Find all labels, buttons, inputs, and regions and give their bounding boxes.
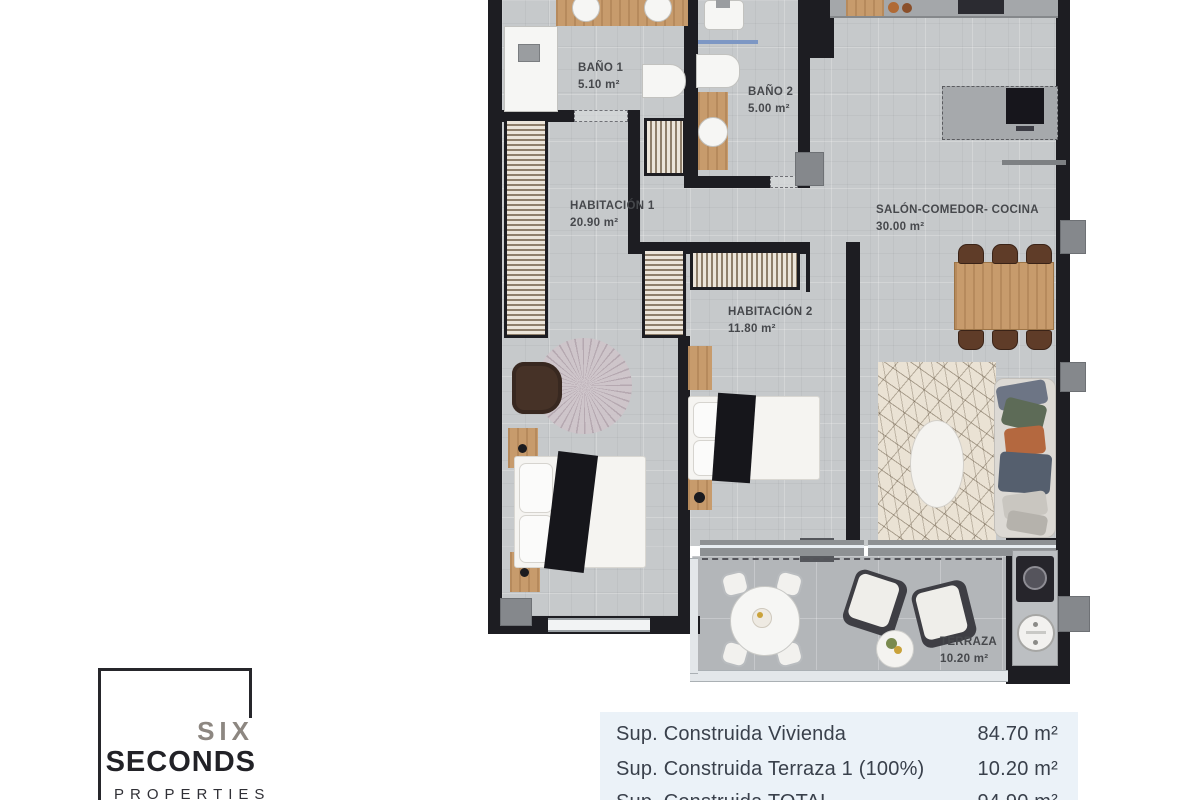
page-canvas: BAÑO 1 5.10 m² BAÑO 2 5.00 m² HABITACIÓN…	[0, 0, 1200, 800]
bath2-faucet	[716, 0, 730, 8]
dining-table	[954, 262, 1054, 330]
summary-row: Sup. Construida TOTAL 94.90 m²	[600, 791, 1078, 800]
room-label-terraza: TERRAZA 10.20 m²	[940, 634, 997, 667]
pillar	[795, 152, 824, 186]
room-label-banyo1: BAÑO 1 5.10 m²	[578, 60, 623, 93]
wall-left-outer	[488, 0, 502, 634]
bath1-shower-head	[518, 44, 540, 62]
summary-label: Sup. Construida Terraza 1 (100%)	[616, 758, 924, 781]
room-area: 30.00 m²	[876, 219, 1039, 236]
room-area: 5.00 m²	[748, 101, 793, 118]
floor-plan: BAÑO 1 5.10 m² BAÑO 2 5.00 m² HABITACIÓN…	[0, 0, 1200, 690]
kitchen-pot	[902, 3, 912, 13]
pillar	[500, 598, 532, 626]
summary-label: Sup. Construida TOTAL	[616, 791, 831, 800]
boiler-text-line	[1026, 631, 1046, 634]
room-label-salon: SALÓN-COMEDOR- COCINA 30.00 m²	[876, 202, 1039, 235]
summary-label: Sup. Construida Vivienda	[616, 723, 846, 746]
boiler-dot	[1033, 640, 1038, 645]
washer-drum	[1023, 566, 1047, 590]
lounge-cushion	[847, 572, 901, 629]
tv-stand	[1016, 126, 1034, 131]
bath1-shower	[504, 26, 558, 112]
room-label-banyo2: BAÑO 2 5.00 m²	[748, 84, 793, 117]
pillar	[1060, 220, 1086, 254]
wall-bath1-right	[684, 0, 698, 188]
kitchen-shelf	[1002, 160, 1066, 165]
sliding-door-bedroom2	[700, 540, 864, 556]
tv-screen	[1006, 88, 1044, 124]
dining-chair	[958, 244, 984, 264]
summary-value: 10.20 m²	[977, 758, 1058, 781]
bed-throw-blanket	[712, 393, 756, 483]
room-name: SALÓN-COMEDOR- COCINA	[876, 202, 1039, 219]
logo-text-properties: PROPERTIES	[114, 786, 270, 800]
bath2-round-sink	[698, 117, 728, 147]
terrace-railing-left	[690, 558, 698, 674]
wall-right-outer	[1056, 0, 1070, 556]
bedroom1-wardrobe	[504, 118, 548, 338]
bath2-door	[770, 176, 798, 188]
terrace-table-decor-dot	[757, 612, 763, 618]
kitchen-pot	[888, 2, 899, 13]
summary-value: 94.90 m²	[977, 791, 1058, 800]
bath1-toilet	[642, 64, 686, 98]
bed-pillow	[519, 463, 553, 513]
logo-text-six: SIX	[150, 716, 254, 747]
sofa-cushion	[998, 451, 1053, 495]
boiler-dot	[1033, 622, 1038, 627]
nightstand-knob	[694, 492, 705, 503]
sofa	[994, 378, 1056, 538]
pillar	[1060, 362, 1086, 392]
wall-bedroom2-right	[846, 242, 860, 546]
room-name: TERRAZA	[940, 634, 997, 651]
wall-bath2-bottom	[698, 176, 770, 188]
bedroom1-bed	[514, 456, 646, 568]
coffee-table	[910, 420, 964, 508]
bedroom2-door-leaf	[806, 242, 810, 292]
dining-chair	[992, 330, 1018, 350]
room-name: BAÑO 1	[578, 60, 623, 77]
room-label-habitacion2: HABITACIÓN 2 11.80 m²	[728, 304, 813, 337]
bedroom1-window	[548, 618, 650, 632]
company-logo: SIX SECONDS PROPERTIES	[96, 666, 266, 800]
kitchen-fridge	[958, 0, 1004, 14]
room-area: 11.80 m²	[728, 321, 813, 338]
dining-chair	[1026, 330, 1052, 350]
bath2-glass-screen	[698, 40, 758, 44]
terrace-dashed-line	[702, 558, 1002, 560]
kitchen-wood-cabinet	[846, 0, 884, 16]
room-name: HABITACIÓN 2	[728, 304, 813, 321]
room-name: HABITACIÓN 1	[570, 198, 655, 215]
terrace-table-decor	[752, 608, 772, 628]
wall-hall-divider	[628, 110, 640, 254]
dining-chair	[992, 244, 1018, 264]
pillar	[1058, 596, 1090, 632]
bedroom1-closet-top	[644, 118, 686, 176]
lounge-cushion	[914, 584, 968, 641]
dining-chair	[958, 330, 984, 350]
summary-value: 84.70 m²	[977, 723, 1058, 746]
bedroom2-bed	[688, 396, 820, 480]
bath1-door	[574, 110, 628, 122]
room-label-habitacion1: HABITACIÓN 1 20.90 m²	[570, 198, 655, 231]
logo-frame-right	[249, 668, 252, 718]
bedroom2-closet-horizontal	[690, 250, 800, 290]
room-area: 10.20 m²	[940, 651, 997, 668]
logo-frame-top	[98, 668, 252, 671]
logo-text-seconds: SECONDS	[96, 746, 256, 779]
room-area: 20.90 m²	[570, 215, 655, 232]
bedroom1-armchair	[512, 362, 562, 414]
nightstand-knob	[518, 444, 527, 453]
summary-row: Sup. Construida Terraza 1 (100%) 10.20 m…	[600, 758, 1078, 781]
logo-frame-left	[98, 668, 101, 800]
surface-summary-table: Sup. Construida Vivienda 84.70 m² Sup. C…	[600, 712, 1078, 800]
terrace-railing-bottom	[690, 670, 1008, 682]
summary-row: Sup. Construida Vivienda 84.70 m²	[600, 723, 1078, 746]
dining-chair	[1026, 244, 1052, 264]
bedroom2-closet-vertical	[642, 248, 686, 338]
side-table-plant	[894, 646, 902, 654]
nightstand-knob	[520, 568, 529, 577]
room-name: BAÑO 2	[748, 84, 793, 101]
bedroom2-nightstand	[688, 346, 712, 390]
bath2-toilet	[696, 54, 740, 88]
room-area: 5.10 m²	[578, 77, 623, 94]
